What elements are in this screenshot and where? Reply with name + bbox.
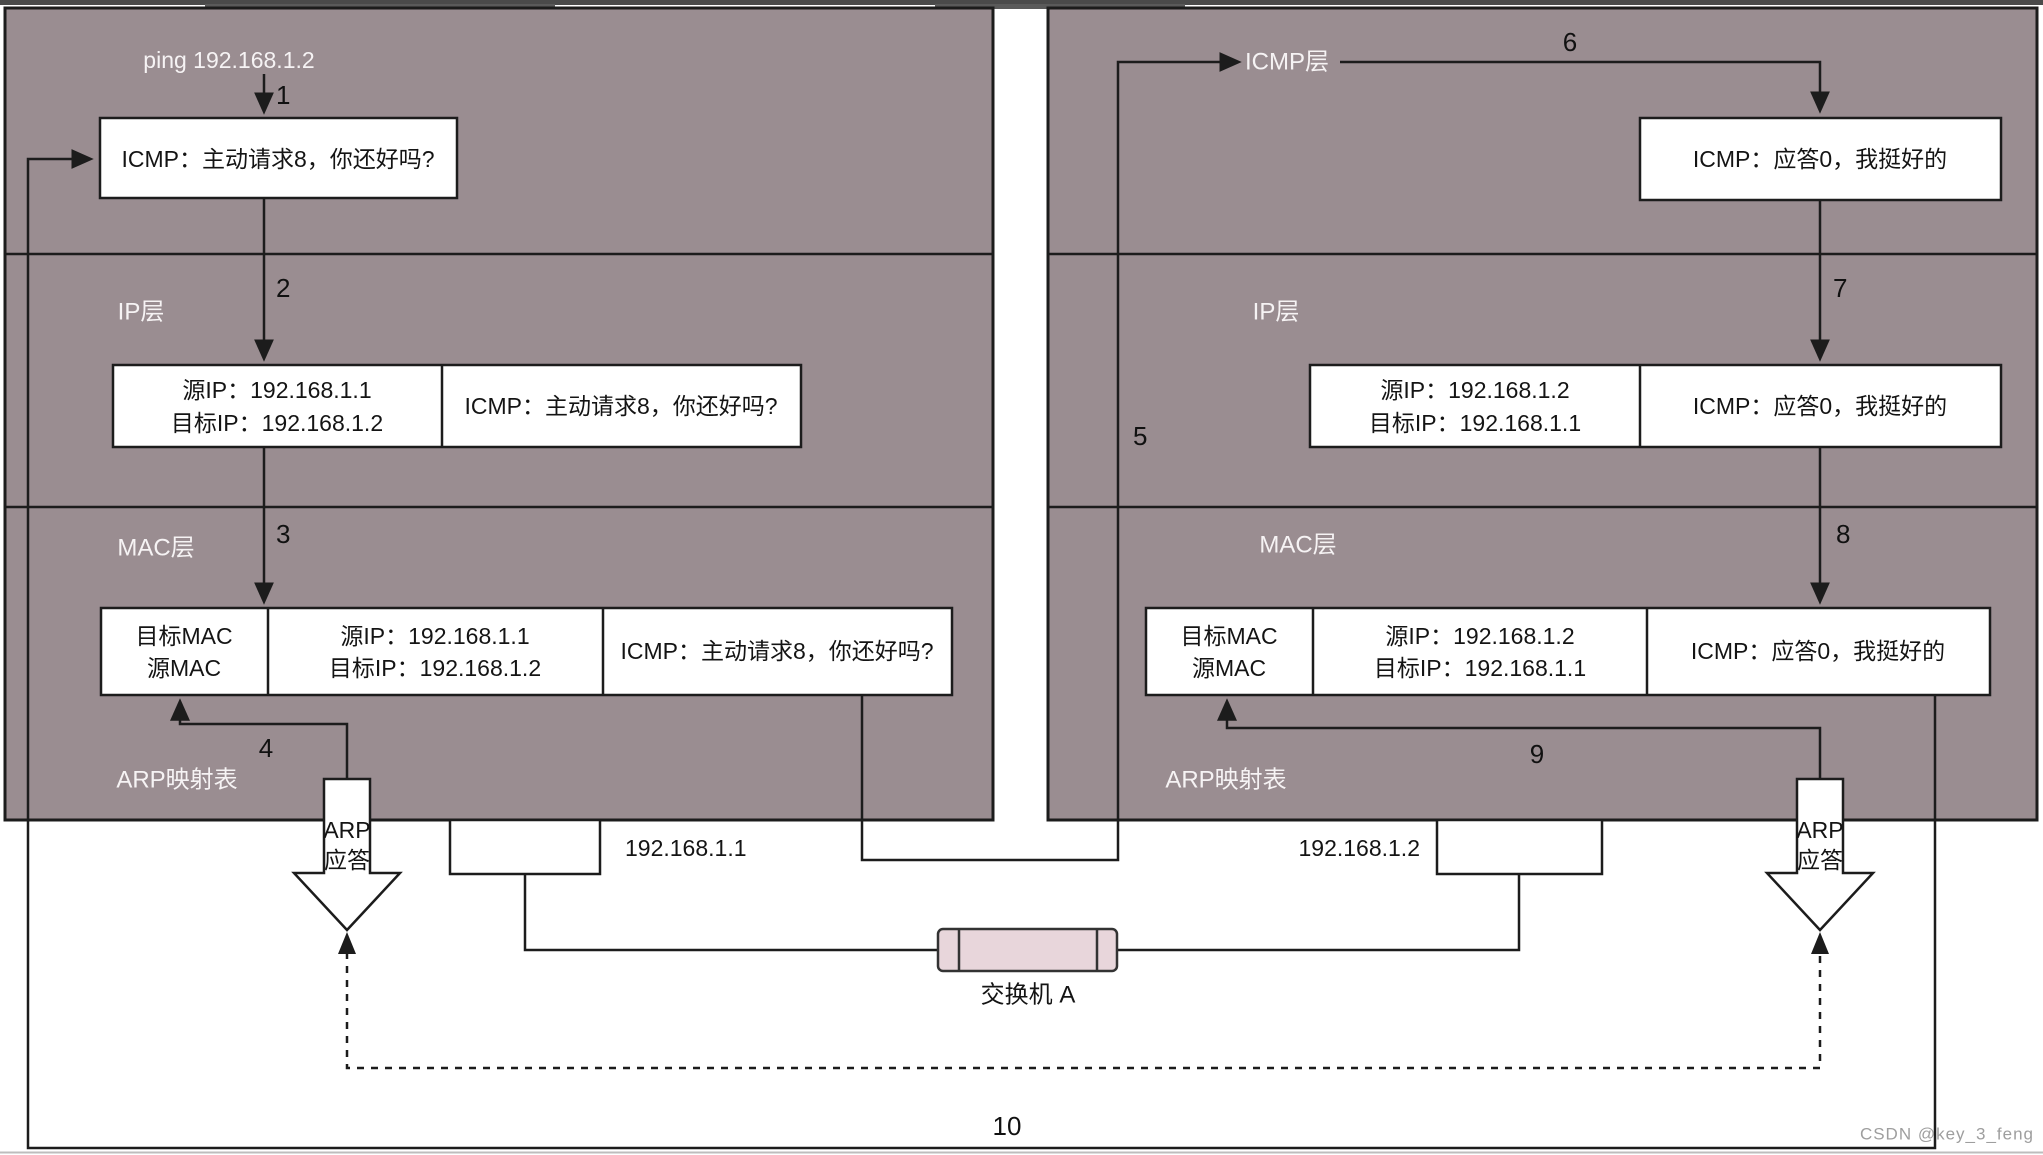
step-number-9: 9 [1530,739,1544,769]
arp-dashed-arrowhead-left [338,932,356,954]
step-number-7: 7 [1833,273,1847,303]
right-mac-layer-label: MAC层 [1259,532,1336,559]
right-mac-box-payload: ICMP：应答0，我挺好的 [1691,638,1945,664]
left-arp-table-label: ARP映射表 [116,767,237,794]
left-nic-box [450,820,600,874]
step-number-10: 10 [993,1111,1022,1141]
left-arp-reply-line2: 应答 [324,847,370,873]
step-number-4: 4 [259,733,273,763]
step-number-1: 1 [276,80,290,110]
right-mac-box-srcmac: 源MAC [1192,655,1266,681]
left-mac-box-srcmac: 源MAC [147,655,221,681]
right-arp-reply-line1: ARP [1796,817,1843,843]
right-mac-box-dstmac: 目标MAC [1180,623,1277,649]
left-icmp-box-text: ICMP：主动请求8，你还好吗? [121,146,434,172]
left-nic-ip-label: 192.168.1.1 [625,835,747,861]
step-number-5: 5 [1133,421,1147,451]
ping-command-label: ping 192.168.1.2 [143,47,314,73]
switch-label: 交换机 A [981,982,1076,1009]
right-nic-cable [1117,874,1519,950]
diagram-canvas: ping 192.168.1.2 ICMP：主动请求8，你还好吗? IP层 源I… [0,0,2043,1155]
arp-dashed-arrowhead-right [1811,932,1829,954]
step-number-8: 8 [1836,519,1850,549]
left-arp-reply-line1: ARP [323,817,370,843]
right-icmp-box-text: ICMP：应答0，我挺好的 [1693,146,1947,172]
step-number-2: 2 [276,273,290,303]
switch-body [938,929,1117,971]
left-mac-box-dst: 目标IP：192.168.1.2 [329,655,541,681]
left-nic-cable [525,874,938,950]
right-mac-box-src: 源IP：192.168.1.2 [1385,623,1574,649]
left-mac-box-payload: ICMP：主动请求8，你还好吗? [620,638,933,664]
right-ip-box-payload: ICMP：应答0，我挺好的 [1693,393,1947,419]
right-mac-box-dst: 目标IP：192.168.1.1 [1374,655,1586,681]
watermark: CSDN @key_3_feng [1860,1125,2034,1144]
right-ip-box-dst: 目标IP：192.168.1.1 [1369,410,1581,436]
step-number-3: 3 [276,519,290,549]
left-ip-layer-label: IP层 [118,299,165,326]
right-ip-layer-label: IP层 [1253,299,1300,326]
right-nic-ip-label: 192.168.1.2 [1298,835,1420,861]
step-number-6: 6 [1563,27,1577,57]
left-ip-box-payload: ICMP：主动请求8，你还好吗? [464,393,777,419]
right-icmp-layer-label: ICMP层 [1245,49,1329,76]
left-ip-box-src: 源IP：192.168.1.1 [182,377,371,403]
right-arp-table-label: ARP映射表 [1165,767,1286,794]
left-mac-box-dstmac: 目标MAC [135,623,232,649]
right-arp-reply-line2: 应答 [1797,847,1843,873]
right-nic-box [1437,820,1602,874]
ping-flow-diagram: ping 192.168.1.2 ICMP：主动请求8，你还好吗? IP层 源I… [0,0,2043,1155]
left-mac-box-src: 源IP：192.168.1.1 [340,623,529,649]
right-ip-box-src: 源IP：192.168.1.2 [1380,377,1569,403]
left-mac-layer-label: MAC层 [117,535,194,562]
left-ip-box-dst: 目标IP：192.168.1.2 [171,410,383,436]
